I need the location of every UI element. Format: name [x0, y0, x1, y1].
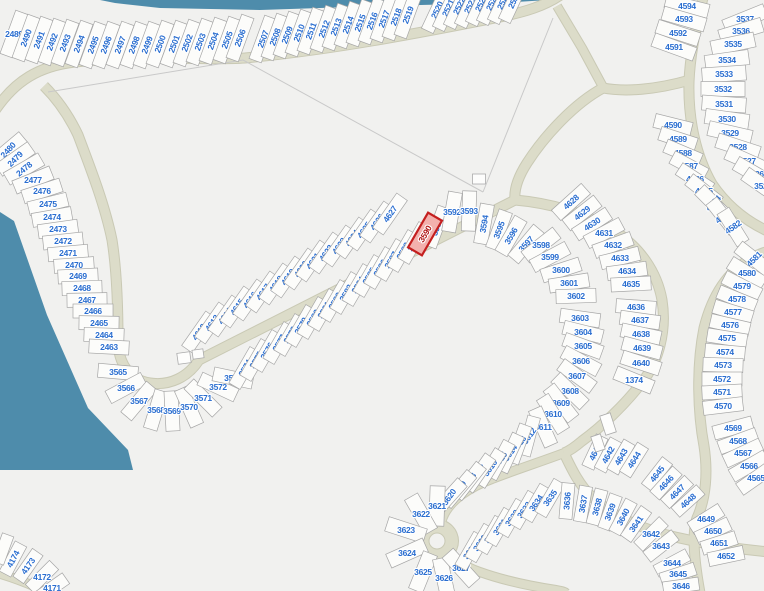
parcel[interactable]: 4573	[703, 357, 743, 372]
parcel[interactable]: 3593	[460, 191, 478, 231]
parcel-shape	[702, 65, 747, 83]
building-footprint	[473, 174, 486, 184]
parcel-shape	[611, 276, 652, 292]
parcel[interactable]: 2463	[89, 339, 130, 355]
parcel[interactable]: 4635	[611, 276, 652, 292]
parcel-shape	[701, 82, 745, 97]
parcel-shape	[703, 357, 743, 372]
plat-map-canvas[interactable]: 2489249024912492249324942495249624972498…	[0, 0, 764, 591]
parcel-shape	[461, 191, 476, 231]
parcel[interactable]: 3532	[701, 82, 745, 97]
parcel[interactable]: 3602	[556, 288, 596, 303]
parcel[interactable]: 3636	[559, 483, 575, 520]
parcel[interactable]: 3533	[702, 65, 747, 83]
parcel[interactable]: 4572	[702, 372, 742, 386]
cul-de-sac-island	[429, 533, 445, 549]
building-footprint	[177, 352, 191, 365]
parcel-shape	[702, 372, 742, 386]
parcel-shape	[556, 288, 596, 303]
building-footprint	[192, 349, 204, 359]
parcel-shape	[89, 339, 130, 355]
plat-map[interactable]: 2489249024912492249324942495249624972498…	[0, 0, 764, 591]
parcel-shape	[559, 483, 575, 520]
